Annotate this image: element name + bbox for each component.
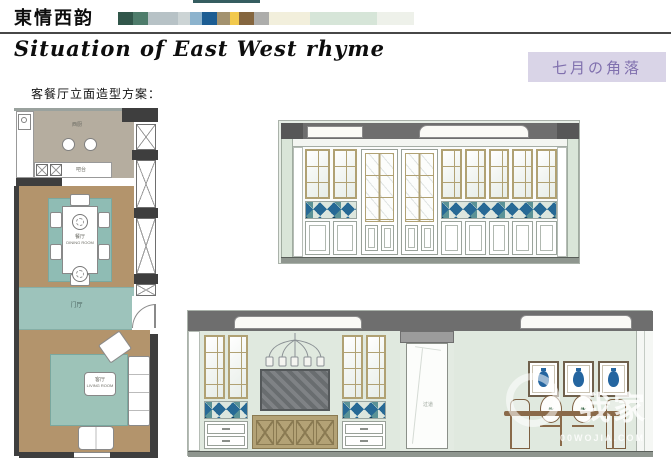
panel-cabinet-door [512, 221, 533, 255]
window-unit [136, 218, 156, 274]
drawer [345, 424, 383, 434]
living-label-capsule: 客厅 LIVING ROOM [84, 372, 116, 396]
bar-stool [62, 138, 75, 151]
cornice [291, 139, 569, 147]
palette-swatch [254, 12, 269, 25]
glass-cabinet-door [512, 149, 533, 199]
presentation-slide: 東情西韵 Situation of East West rhyme 七月の角落 … [0, 0, 671, 461]
x-pattern-door [296, 420, 314, 445]
pilaster [557, 147, 567, 257]
chair-seat [540, 425, 562, 427]
glass-cabinet-door [305, 149, 330, 199]
window-unit [136, 284, 156, 296]
counter-hob [36, 164, 48, 176]
door-glazing [405, 153, 434, 222]
dining-chair [98, 212, 110, 228]
door-crease [412, 348, 423, 444]
mosaic-tile-band [342, 401, 386, 419]
hall-label: 门厅 [19, 303, 134, 311]
wall-segment [132, 208, 158, 218]
glass-door-leaf [401, 149, 438, 255]
panel-cabinet-door [333, 221, 358, 255]
bar-stool [84, 138, 97, 151]
lower-panel-doors [441, 221, 557, 255]
palette-swatch [269, 12, 310, 25]
window-unit [136, 160, 156, 208]
table-leg [510, 416, 512, 449]
floor-plan: 西厨 吧台 餐厅 DINING ROOM [14, 108, 158, 458]
door-crease [415, 346, 441, 351]
kitchen-label: 西厨 [62, 122, 92, 128]
bottom-wall [110, 452, 158, 458]
floor-line [281, 257, 579, 263]
side-wall [567, 139, 579, 259]
door-lower-panels [405, 225, 434, 251]
dining-room-label-en: DINING ROOM [62, 240, 98, 245]
glass-cabinet-door [228, 335, 249, 399]
glass-cabinet-door [342, 335, 363, 399]
palette-swatch [239, 12, 254, 25]
glass-cabinet-door [204, 335, 225, 399]
palette-swatch [118, 12, 133, 25]
elevation-cabinet-wall [278, 120, 580, 264]
palette-swatch [190, 12, 202, 25]
palette-swatch [310, 12, 377, 25]
counter-hob [50, 164, 62, 176]
display-cabinet-glass [342, 335, 386, 399]
wall-segment [122, 108, 158, 122]
sofa [128, 356, 150, 426]
lower-panel-doors [305, 221, 357, 255]
ceiling-recess [419, 125, 529, 138]
chandelier-icon [262, 333, 328, 371]
door-cornice [400, 331, 454, 343]
glass-cabinet-door [489, 149, 510, 199]
dining-chair [50, 244, 62, 260]
window-unit [136, 124, 156, 150]
drawer [207, 424, 245, 434]
wall-segment [132, 274, 158, 284]
palette-swatch [230, 12, 239, 25]
dining-chair [98, 244, 110, 260]
door-leaf [154, 304, 156, 328]
sink-basin [21, 117, 27, 123]
glass-door-leaf [361, 149, 398, 255]
ceiling-recess [520, 315, 632, 329]
top-accent-strip [193, 0, 260, 3]
page-subtitle: Situation of East West rhyme [14, 36, 385, 61]
panel-cabinet-door [536, 221, 557, 255]
drawer-unit [204, 421, 248, 449]
x-pattern-door [256, 420, 274, 445]
door-panel [405, 225, 418, 251]
upper-glass-doors [305, 149, 357, 199]
dining-chair [70, 194, 90, 206]
television [260, 369, 330, 411]
page-title: 東情西韵 [14, 4, 94, 30]
drawer [207, 436, 245, 446]
tv-cabinet [252, 415, 338, 449]
loveseat [78, 426, 114, 450]
glass-cabinet-door [465, 149, 486, 199]
glass-cabinet-door [366, 335, 387, 399]
wall-segment [132, 150, 158, 160]
living-room-label-en: LIVING ROOM [85, 383, 115, 388]
place-setting [72, 214, 88, 230]
pilaster [293, 147, 303, 257]
color-palette-bar [118, 12, 414, 25]
mosaic-tile-band [204, 401, 248, 419]
door-glazing [365, 153, 394, 222]
x-pattern-door [316, 420, 334, 445]
panel-cabinet-door [441, 221, 462, 255]
door-panel [365, 225, 378, 251]
watermark-url: 00WOJIA.COM [560, 433, 645, 443]
right-wall [150, 334, 158, 456]
palette-swatch [202, 12, 217, 25]
drawer-unit [342, 421, 386, 449]
palette-swatch [377, 12, 414, 25]
drawer [345, 436, 383, 446]
glass-cabinet-door [333, 149, 358, 199]
corner-badge: 七月の角落 [528, 52, 666, 82]
place-setting [72, 266, 88, 282]
palette-swatch [148, 12, 178, 25]
panel-cabinet-door [305, 221, 330, 255]
door-note: 过道 [407, 402, 448, 408]
side-wall [281, 139, 293, 259]
palette-swatch [217, 12, 230, 25]
watermark-ring [506, 373, 560, 427]
x-pattern-door [276, 420, 294, 445]
glass-cabinet-door [536, 149, 557, 199]
header-divider [0, 32, 671, 34]
pilaster [188, 331, 200, 451]
door-panel [381, 225, 394, 251]
ceiling-recess [307, 126, 363, 138]
display-cabinet-glass [204, 335, 248, 399]
mosaic-tile-band [441, 201, 557, 219]
ceiling-recess [234, 316, 362, 329]
elevation-tv-dining-wall: 过道 ❧ ❧ 我家 00WOJIA.COM [187, 310, 652, 456]
upper-glass-doors [441, 149, 557, 199]
panel-cabinet-door [465, 221, 486, 255]
dining-chair [50, 212, 62, 228]
glass-cabinet-door [441, 149, 462, 199]
door-panel [421, 225, 434, 251]
passage-door: 过道 [406, 343, 448, 449]
partition-wall [16, 178, 62, 186]
mosaic-tile-band [305, 201, 357, 219]
bar-label: 吧台 [66, 167, 96, 173]
floor-line [188, 451, 653, 457]
palette-swatch [178, 12, 190, 25]
section-label: 客餐厅立面造型方案： [31, 85, 161, 102]
panel-cabinet-door [489, 221, 510, 255]
bottom-window [74, 452, 110, 458]
watermark-text: 我家 [579, 383, 647, 429]
door-lower-panels [365, 225, 394, 251]
palette-swatch [133, 12, 148, 25]
bottom-wall [19, 452, 74, 458]
